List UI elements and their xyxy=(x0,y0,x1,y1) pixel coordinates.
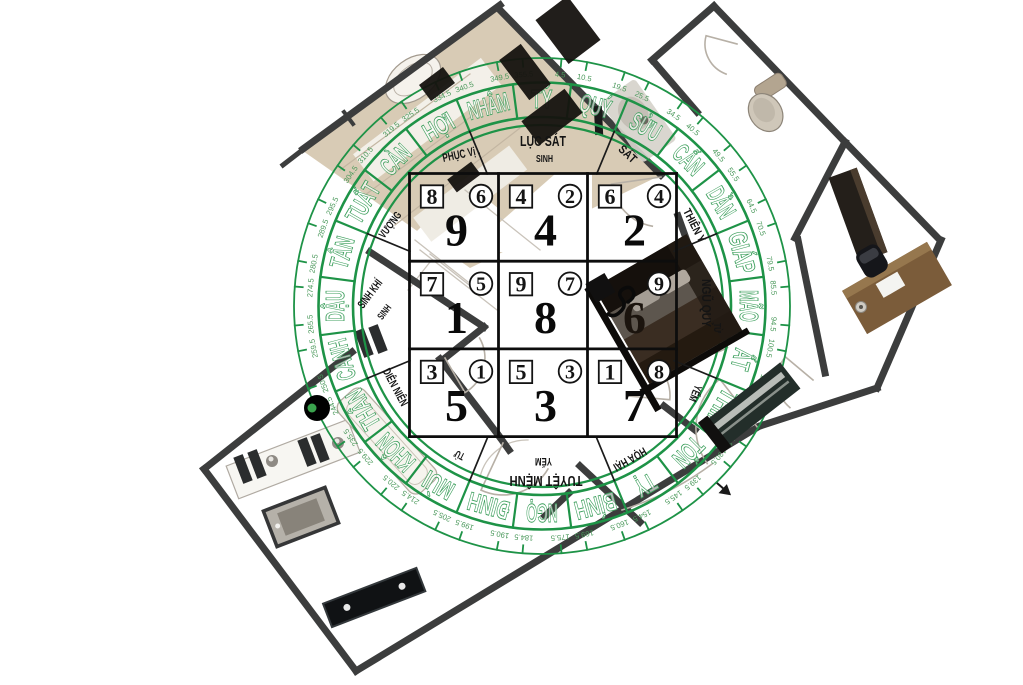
svg-text:3: 3 xyxy=(565,361,575,383)
svg-text:LỤC SÁT: LỤC SÁT xyxy=(520,133,566,150)
svg-text:1: 1 xyxy=(605,359,616,384)
svg-text:7: 7 xyxy=(623,380,646,431)
svg-text:5: 5 xyxy=(516,359,527,384)
svg-text:85.5: 85.5 xyxy=(768,280,778,295)
svg-text:DẬU: DẬU xyxy=(320,290,350,322)
svg-text:265.5: 265.5 xyxy=(305,314,315,334)
svg-text:8: 8 xyxy=(654,361,664,383)
svg-text:YẾM: YẾM xyxy=(535,455,552,468)
svg-text:1: 1 xyxy=(445,292,468,343)
svg-text:SINH: SINH xyxy=(536,153,553,165)
svg-text:8: 8 xyxy=(534,292,557,343)
svg-text:6: 6 xyxy=(605,184,616,209)
svg-text:3: 3 xyxy=(534,380,557,431)
svg-text:184.5: 184.5 xyxy=(514,532,534,542)
svg-text:TỪ: TỪ xyxy=(711,323,724,333)
svg-text:7: 7 xyxy=(565,274,575,296)
svg-text:8: 8 xyxy=(427,184,438,209)
svg-text:9: 9 xyxy=(654,274,664,296)
svg-text:TUYỆT MỆNH: TUYỆT MỆNH xyxy=(510,472,583,490)
svg-text:9: 9 xyxy=(516,272,527,297)
svg-text:MÃO: MÃO xyxy=(734,290,764,322)
svg-text:4.5: 4.5 xyxy=(555,70,566,80)
svg-text:5: 5 xyxy=(445,380,468,431)
svg-text:1: 1 xyxy=(476,361,486,383)
svg-text:7: 7 xyxy=(427,272,438,297)
svg-text:2: 2 xyxy=(565,186,575,208)
svg-text:274.5: 274.5 xyxy=(305,278,315,298)
svg-text:NGỌ: NGỌ xyxy=(526,498,558,528)
svg-text:4: 4 xyxy=(654,186,664,208)
svg-text:9: 9 xyxy=(445,205,468,256)
svg-text:6: 6 xyxy=(623,292,646,343)
svg-text:175.5: 175.5 xyxy=(550,532,570,542)
svg-text:6: 6 xyxy=(476,186,486,208)
svg-text:2: 2 xyxy=(623,205,646,256)
svg-text:3: 3 xyxy=(427,359,438,384)
svg-text:4: 4 xyxy=(516,184,527,209)
svg-text:4: 4 xyxy=(534,205,557,256)
svg-text:5: 5 xyxy=(476,274,486,296)
svg-text:NGŨ QUỶ: NGŨ QUỶ xyxy=(699,279,714,328)
svg-text:94.5: 94.5 xyxy=(768,316,778,331)
